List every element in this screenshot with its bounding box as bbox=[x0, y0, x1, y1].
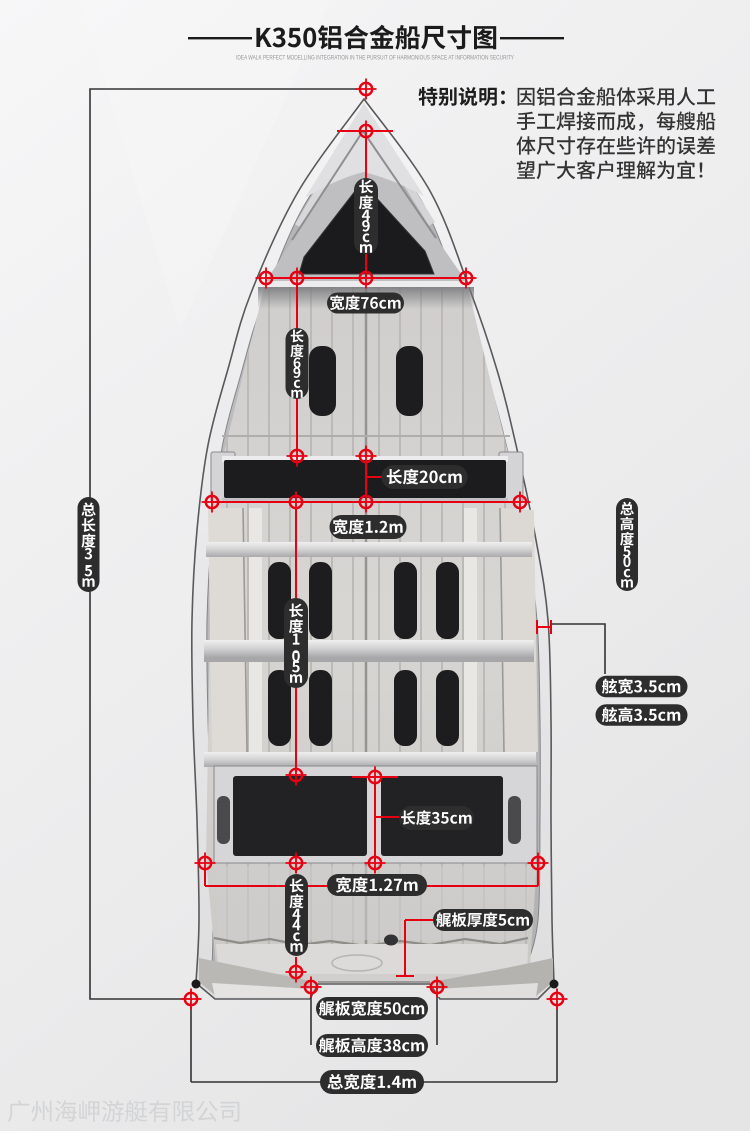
svg-text:IDEA WALK PERFECT MODELLING IN: IDEA WALK PERFECT MODELLING INTEGRATION … bbox=[236, 56, 514, 62]
